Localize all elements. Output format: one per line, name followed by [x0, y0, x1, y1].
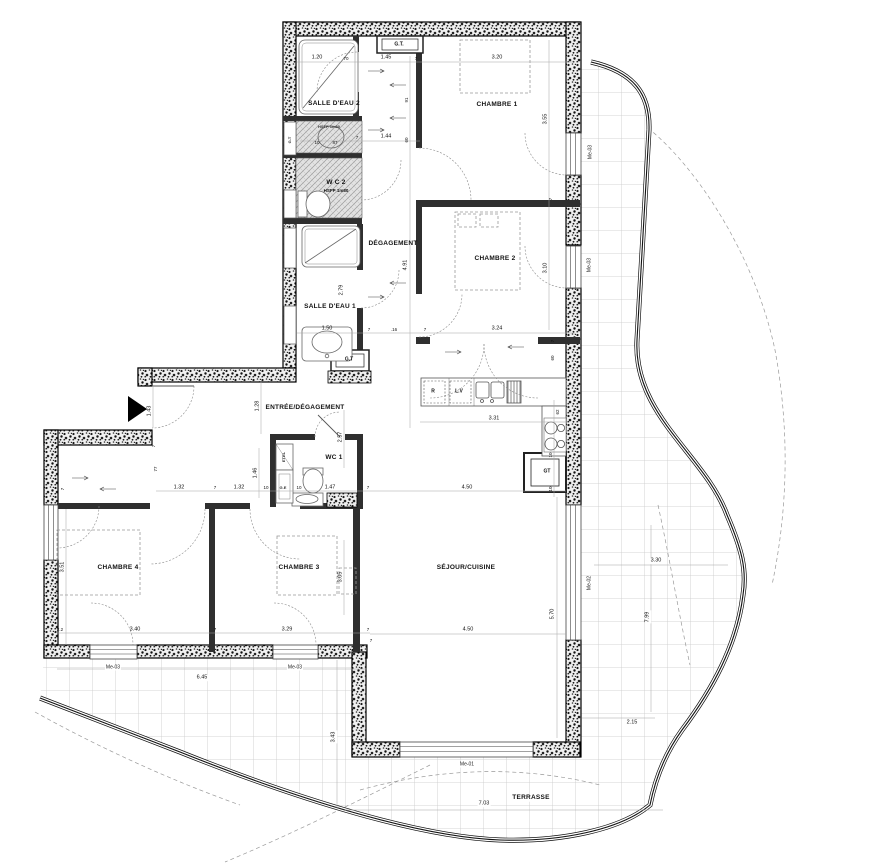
- room-label-wc-2: W C 2: [326, 180, 345, 187]
- dim-label: 2.57: [338, 432, 344, 443]
- dim-label: 7: [367, 486, 370, 491]
- gt-label-sejour: GT: [544, 470, 551, 475]
- dishwasher-label: L.V: [455, 390, 463, 395]
- dim-label: 2.15: [626, 720, 639, 726]
- dim-label: 3.20: [492, 55, 503, 61]
- dim-label: 7: [214, 486, 217, 491]
- wall-niches: [284, 122, 296, 344]
- etel-closet-label: ETEL: [282, 452, 286, 462]
- dim-label: 70: [343, 57, 348, 62]
- dim-label: 2.2: [57, 628, 63, 633]
- dim-label: 7: [424, 328, 427, 333]
- dim-label: 6.45: [196, 675, 209, 681]
- note-wc2-ceiling-height: HSFP 1m80: [324, 189, 349, 194]
- dim-label: 4.50: [462, 485, 473, 491]
- fridge-label: R: [431, 390, 435, 395]
- dim-label: 7.03: [478, 801, 491, 807]
- dim-label: 60: [405, 137, 410, 142]
- dim-label: 3.43: [331, 731, 337, 744]
- dim-label: 60: [551, 355, 556, 360]
- dim-label: 4.50: [463, 627, 474, 633]
- dim-label: 1.43: [147, 406, 153, 417]
- room-label-sejour-cuisine: SÉJOUR/CUISINE: [437, 565, 495, 572]
- dim-label: 3.24: [492, 326, 503, 332]
- dim-label: 1.32: [174, 485, 185, 491]
- room-label-salle-deau-2: SALLE D'EAU 2: [308, 101, 360, 108]
- gt-label-niche: G.T: [288, 137, 292, 144]
- dim-label: 7: [370, 639, 373, 644]
- note-duct-box: HSFP 1m80: [318, 125, 340, 129]
- room-label-terrasse: TERRASSE: [511, 795, 550, 802]
- dim-label: 3.29: [282, 627, 293, 633]
- dim-label: 3.30: [650, 558, 663, 564]
- dim-label: 7: [367, 628, 370, 633]
- room-label-chambre-4: CHAMBRE 4: [98, 565, 139, 572]
- dim-label: 1.45: [381, 55, 392, 61]
- dim-label: 3.40: [130, 627, 141, 633]
- window-code-me03-bottom-1: Me-03: [105, 666, 121, 671]
- dim-label: 1.20: [312, 55, 323, 61]
- room-label-salle-deau-1: SALLE D'EAU 1: [304, 304, 356, 311]
- dim-label: 2.79: [339, 285, 345, 296]
- dim-label: 3.55: [543, 114, 549, 125]
- gt-label-top: G.T.: [394, 43, 403, 48]
- room-label-wc-1: WC 1: [325, 455, 342, 462]
- dim-label: 3.31: [489, 416, 500, 422]
- dim-label: 7.99: [645, 611, 651, 624]
- dim-label: 10: [296, 486, 301, 491]
- dim-label: 3.05: [338, 572, 344, 583]
- window-code-me02-right: Me-02: [588, 576, 593, 590]
- window-code-me03-bottom-2: Me-03: [287, 666, 303, 671]
- ge-closet-label: G.E: [280, 486, 287, 490]
- dim-label: 1.44: [381, 134, 392, 140]
- dim-label: 4.91: [403, 260, 409, 271]
- dim-label: 87: [332, 141, 337, 146]
- dim-label: 91: [405, 97, 410, 102]
- dim-label: .16: [391, 328, 397, 333]
- floor-plan-drawing: [0, 0, 892, 863]
- dim-label: 1.46: [253, 468, 259, 479]
- floor-plan-page: SALLE D'EAU 2 CHAMBRE 1 W C 2 DÉGAGEMENT…: [0, 0, 892, 863]
- dim-label: 7: [356, 136, 359, 141]
- dim-label: 10: [549, 452, 554, 457]
- room-label-chambre-3: CHAMBRE 3: [279, 565, 320, 572]
- dim-label: 10: [263, 486, 268, 491]
- room-label-chambre-2: CHAMBRE 2: [475, 256, 516, 263]
- dim-label: 7: [214, 628, 217, 633]
- room-label-entree-degagement: ENTRÉE/DÉGAGEMENT: [265, 405, 344, 412]
- dim-label: 77: [154, 466, 159, 471]
- dim-label: 7: [152, 445, 157, 448]
- dim-label: 7: [368, 328, 371, 333]
- dim-label: 7: [415, 57, 418, 62]
- dim-label: 7: [551, 340, 556, 343]
- dim-label: 10: [549, 486, 554, 491]
- gt-label-salle-deau-1: G.T: [345, 358, 353, 363]
- gt-speckle-block: [328, 371, 371, 383]
- dim-label: 62: [556, 409, 561, 414]
- dim-label: 3.10: [543, 263, 549, 274]
- dim-label: 5.70: [550, 609, 556, 620]
- dim-label: 1.47: [325, 485, 336, 491]
- dim-label: 10: [314, 141, 319, 146]
- dim-label: 1.32: [234, 485, 245, 491]
- window-code-me01-bottom: Me-01: [459, 763, 475, 768]
- room-label-chambre-1: CHAMBRE 1: [477, 102, 518, 109]
- window-code-me03-right-2: Me-03: [588, 258, 593, 272]
- dim-label: 7: [61, 488, 66, 491]
- dim-label: 1.50: [322, 326, 333, 332]
- window-code-me03-right-1: Me-03: [589, 145, 594, 159]
- dim-label: 3.51: [60, 562, 66, 573]
- room-label-degagement: DÉGAGEMENT: [368, 241, 417, 248]
- wc1-speckle-block: [327, 493, 357, 507]
- dim-label: 7: [549, 198, 554, 201]
- dim-label: 1.28: [255, 401, 261, 412]
